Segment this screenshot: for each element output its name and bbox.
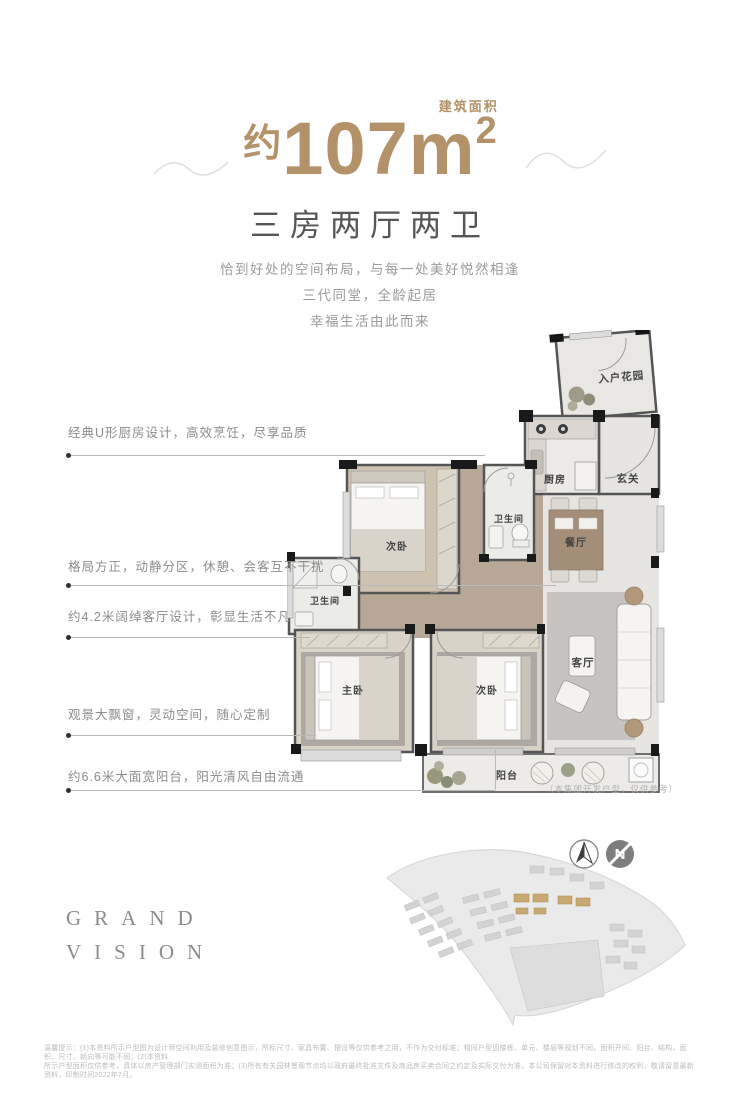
callout-balcony: 约6.6米大面宽阳台，阳光清风自由流通 [68, 766, 304, 785]
master-room: 主卧 [295, 630, 413, 752]
area-label: 建筑面积 [439, 100, 499, 113]
callout-baywindow: 观景大飘窗，灵动空间，随心定制 [68, 704, 271, 723]
brand-line-1: GRAND [66, 906, 206, 931]
bedroom3-room: 次卧 [431, 630, 543, 752]
disclaimer-line-1: 温馨提示：(1)本资料所示户型图为设计师空间利用及装修创意图示，所标尺寸、家具布… [44, 1044, 698, 1062]
bedroom2-room: 次卧 [347, 465, 459, 593]
entry-garden-room: 入户花园 [549, 330, 656, 420]
room-label-foyer: 玄关 [617, 472, 640, 485]
tagline-1: 恰到好处的空间布局，与每一处美好悦然相逢 [0, 257, 740, 283]
kitchen-room: 厨房 [525, 416, 599, 494]
room-label-bedroom2: 次卧 [386, 540, 408, 553]
callout-kitchen: 经典U形厨房设计，高效烹饪，尽享品质 [68, 422, 308, 441]
dining-room: 餐厅 [549, 498, 603, 582]
plan-note: （本集团开发户型，仅供参考） [545, 783, 678, 795]
room-label-kitchen: 厨房 [544, 473, 566, 486]
room-label-bath1: 卫生间 [494, 513, 524, 524]
taglines: 恰到好处的空间布局，与每一处美好悦然相逢 三代同堂，全龄起居 幸福生活由此而来 [0, 257, 740, 335]
leader-line-5 [68, 790, 495, 791]
room-label-dining: 餐厅 [564, 536, 587, 549]
compass-north-letter: N [615, 846, 626, 863]
disclaimer: 温馨提示：(1)本资料所示户型图为设计师空间利用及装修创意图示，所标尺寸、家具布… [44, 1044, 698, 1080]
leader-line-1 [68, 455, 485, 456]
hero-area: 约107m建筑面积2 [0, 112, 740, 186]
tagline-2: 三代同堂，全龄起居 [0, 283, 740, 309]
poster-page: 约107m建筑面积2 三房两厅两卫 恰到好处的空间布局，与每一处美好悦然相逢 三… [0, 0, 740, 1098]
brand-line-2: VISION [66, 940, 215, 965]
disclaimer-line-2: 所示户型面积仅供参考，具体以房产管理部门实测面积为准；(3)所有有关园林景观节点… [44, 1062, 698, 1080]
living-room: 客厅 [547, 587, 651, 740]
leader-line-3 [68, 637, 310, 638]
callout-livingroom: 约4.2米阔绰客厅设计，彰显生活不凡 [68, 606, 291, 625]
bathroom1-room: 卫生间 [484, 465, 534, 560]
leader-line-5-vertical [495, 750, 496, 790]
layout-title: 三房两厅两卫 [0, 200, 740, 245]
area-prefix: 约 [243, 123, 282, 165]
compass-icon: N [570, 840, 634, 868]
room-label-balcony: 阳台 [496, 769, 518, 782]
room-label-master: 主卧 [342, 684, 364, 697]
room-label-bath2: 卫生间 [310, 595, 340, 606]
leader-line-4 [68, 735, 316, 736]
room-label-living: 客厅 [571, 656, 595, 669]
leader-line-2 [68, 585, 556, 586]
floorplan-drawing: 入户花园 厨房 玄关 [287, 330, 667, 800]
room-label-bedroom3: 次卧 [476, 684, 498, 697]
callout-zoning: 格局方正，动静分区，休憩、会客互不干扰 [68, 556, 325, 575]
sitemap-drawing: N [362, 832, 710, 1037]
area-superscript: 2 [476, 112, 497, 150]
area-number: 107m [282, 107, 475, 190]
